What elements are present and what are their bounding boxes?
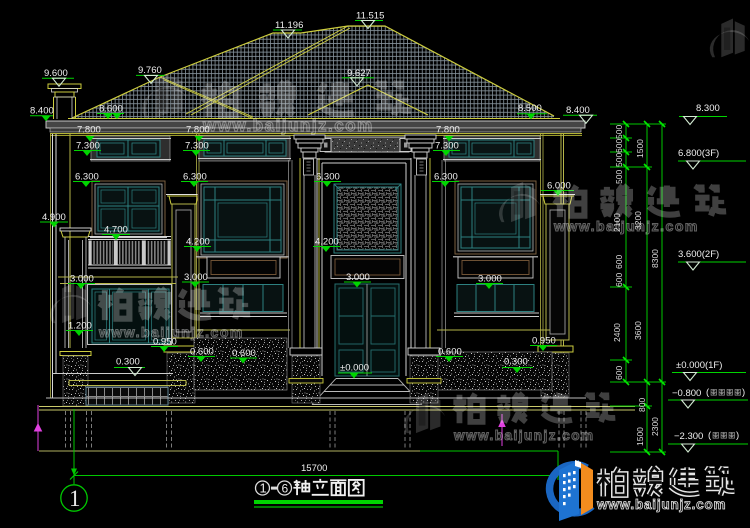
svg-text:1: 1 — [260, 481, 267, 496]
svg-text:0.300: 0.300 — [116, 357, 140, 368]
svg-text:1: 1 — [69, 486, 81, 511]
svg-text:3.000: 3.000 — [70, 274, 94, 285]
svg-text:6.800(3F): 6.800(3F) — [678, 148, 719, 159]
svg-text:7.300: 7.300 — [435, 141, 459, 152]
svg-text:1.200: 1.200 — [68, 321, 92, 332]
svg-text:9.600: 9.600 — [44, 68, 68, 79]
svg-text:600: 600 — [614, 366, 624, 380]
svg-text:0.600: 0.600 — [438, 347, 462, 358]
svg-text:www.baijunjz.com: www.baijunjz.com — [453, 428, 595, 443]
svg-text:500: 500 — [614, 153, 624, 167]
svg-text:8.400: 8.400 — [566, 105, 590, 116]
svg-text:2300: 2300 — [650, 417, 660, 436]
svg-text:600: 600 — [614, 255, 624, 269]
svg-text:1500: 1500 — [635, 139, 645, 158]
svg-text:9.760: 9.760 — [138, 65, 162, 76]
svg-text:www.baijunjz.com: www.baijunjz.com — [202, 116, 374, 135]
svg-text:6.300: 6.300 — [316, 172, 340, 183]
svg-text:): ) — [736, 430, 739, 441]
svg-text:8.500: 8.500 — [518, 103, 542, 114]
svg-text:8300: 8300 — [650, 249, 660, 268]
svg-text:6: 6 — [282, 482, 289, 496]
svg-text:800: 800 — [637, 398, 647, 412]
svg-text:3.000: 3.000 — [346, 272, 370, 283]
svg-text:−2.300: −2.300 — [674, 431, 703, 442]
svg-text:0.300: 0.300 — [504, 357, 528, 368]
svg-text:6.300: 6.300 — [75, 172, 99, 183]
svg-text:1500: 1500 — [635, 427, 645, 446]
svg-text:4.200: 4.200 — [315, 237, 339, 248]
svg-text:3600: 3600 — [633, 321, 643, 340]
svg-text:7.800: 7.800 — [77, 125, 101, 136]
svg-text:7.300: 7.300 — [185, 141, 209, 152]
svg-text:±0.000(1F): ±0.000(1F) — [676, 360, 722, 371]
svg-text:500: 500 — [614, 170, 624, 184]
svg-text:4.200: 4.200 — [186, 237, 210, 248]
svg-text:3.000: 3.000 — [184, 272, 208, 283]
svg-text:7.800: 7.800 — [436, 125, 460, 136]
svg-text:0.950: 0.950 — [532, 336, 556, 347]
svg-text:11.515: 11.515 — [356, 11, 384, 22]
svg-text:11.196: 11.196 — [275, 20, 303, 31]
svg-text:4.900: 4.900 — [42, 212, 66, 223]
svg-text:600: 600 — [614, 139, 624, 153]
svg-text:−0.800: −0.800 — [672, 388, 701, 399]
svg-text:www.baijunjz.com: www.baijunjz.com — [596, 497, 726, 512]
svg-text:www.baijunjz.com: www.baijunjz.com — [553, 218, 699, 234]
svg-text:2400: 2400 — [612, 323, 622, 342]
svg-text:8.600: 8.600 — [99, 104, 123, 115]
svg-text:500: 500 — [614, 125, 624, 139]
svg-text:4.700: 4.700 — [104, 225, 128, 236]
svg-text:6.300: 6.300 — [434, 172, 458, 183]
svg-text:www.baijunjz.com: www.baijunjz.com — [98, 324, 244, 340]
svg-text:3.600(2F): 3.600(2F) — [678, 249, 719, 260]
svg-text:3.000: 3.000 — [478, 274, 502, 285]
svg-text:8.400: 8.400 — [30, 106, 54, 117]
svg-text:): ) — [742, 387, 745, 398]
svg-text:600: 600 — [614, 273, 624, 287]
svg-text:±0.000: ±0.000 — [340, 363, 369, 374]
svg-text:0.600: 0.600 — [232, 348, 256, 359]
svg-text:0.600: 0.600 — [190, 347, 214, 358]
svg-text:7.300: 7.300 — [76, 141, 100, 152]
svg-text:8.300: 8.300 — [696, 103, 720, 114]
svg-text:15700: 15700 — [301, 463, 327, 474]
svg-text:6.300: 6.300 — [183, 172, 207, 183]
